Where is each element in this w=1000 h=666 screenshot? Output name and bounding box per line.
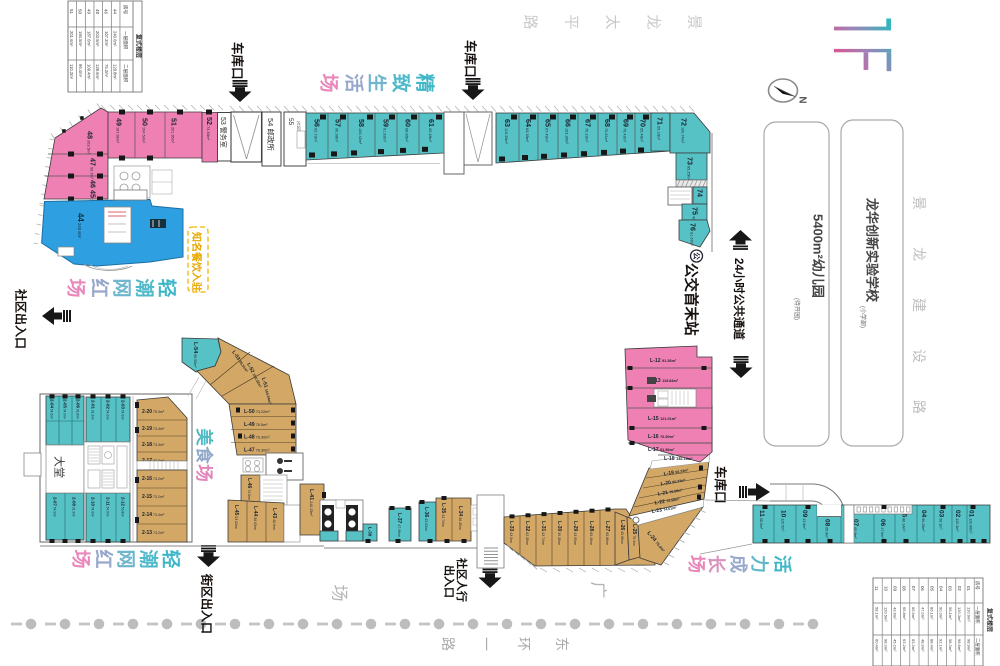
svg-text:景: 景 xyxy=(686,14,703,29)
svg-text:120.5m²: 120.5m² xyxy=(884,607,889,622)
svg-text:成: 成 xyxy=(728,555,749,573)
svg-text:致: 致 xyxy=(390,73,413,93)
svg-text:48: 48 xyxy=(95,9,100,15)
svg-text:24小时公共通道: 24小时公共通道 xyxy=(732,258,746,340)
svg-text:194.5m²: 194.5m² xyxy=(78,31,83,47)
svg-text:92.1m²: 92.1m² xyxy=(939,639,944,652)
svg-text:2-04 54.0m²: 2-04 54.0m² xyxy=(49,399,54,419)
svg-text:环: 环 xyxy=(516,637,532,651)
svg-text:龙: 龙 xyxy=(645,14,662,29)
svg-text:46: 46 xyxy=(104,9,109,15)
svg-text:11: 11 xyxy=(874,586,879,591)
svg-text:红: 红 xyxy=(88,278,111,297)
svg-text:美: 美 xyxy=(194,428,214,446)
svg-text:活: 活 xyxy=(772,555,793,573)
svg-text:203.5m²: 203.5m² xyxy=(95,31,100,47)
svg-text:120.9m²: 120.9m² xyxy=(966,607,971,622)
svg-text:街区出入口: 街区出入口 xyxy=(200,573,215,634)
svg-text:房号: 房号 xyxy=(974,581,981,590)
svg-text:场: 场 xyxy=(686,555,706,573)
svg-text:房号: 房号 xyxy=(122,5,129,15)
svg-text:01 120.86m²: 01 120.86m² xyxy=(968,510,975,534)
svg-text:建: 建 xyxy=(911,298,927,312)
svg-text:58.1m²: 58.1m² xyxy=(874,607,879,620)
svg-text:98.3m²: 98.3m² xyxy=(884,639,889,652)
svg-text:(待开园): (待开园) xyxy=(793,298,801,320)
svg-text:06: 06 xyxy=(920,586,925,591)
svg-text:广: 广 xyxy=(589,582,608,599)
svg-text:187.6m²: 187.6m² xyxy=(87,31,92,47)
svg-text:60.4m²: 60.4m² xyxy=(874,639,879,652)
svg-text:5400m²幼儿园: 5400m²幼儿园 xyxy=(811,214,826,298)
svg-text:98.6m²: 98.6m² xyxy=(957,639,962,652)
svg-text:90.3m²: 90.3m² xyxy=(939,607,944,620)
svg-text:2-07 54.0m²: 2-07 54.0m² xyxy=(52,497,57,517)
svg-text:2-08 91.9m²: 2-08 91.9m² xyxy=(71,497,76,517)
svg-text:精: 精 xyxy=(414,73,437,92)
svg-text:轻: 轻 xyxy=(160,549,183,568)
svg-text:51: 51 xyxy=(69,9,74,15)
svg-text:2-02 54.0m²: 2-02 54.0m² xyxy=(105,400,110,420)
svg-text:02: 02 xyxy=(957,586,962,591)
svg-text:平: 平 xyxy=(563,14,580,29)
svg-text:路: 路 xyxy=(440,637,456,651)
svg-text:2-12 53.8m²: 2-12 53.8m² xyxy=(120,497,125,517)
svg-text:01: 01 xyxy=(966,586,971,591)
svg-text:201.6m²: 201.6m² xyxy=(69,31,74,47)
svg-text:L-38: L-38 xyxy=(367,527,372,537)
svg-text:04 90.26m²: 04 90.26m² xyxy=(920,510,927,532)
svg-text:场: 场 xyxy=(194,464,214,482)
svg-text:55: 55 xyxy=(287,118,294,126)
svg-text:2-01 91.3m²: 2-01 91.3m² xyxy=(90,400,95,420)
svg-text:长: 长 xyxy=(706,555,726,574)
svg-text:一层面积: 一层面积 xyxy=(974,606,981,624)
svg-text:43.6m²: 43.6m² xyxy=(893,607,898,620)
svg-text:活: 活 xyxy=(343,73,366,92)
svg-text:复式楼层: 复式楼层 xyxy=(135,33,143,58)
svg-text:03: 03 xyxy=(948,586,953,591)
svg-text:96.4m²: 96.4m² xyxy=(78,64,83,78)
svg-text:潮: 潮 xyxy=(133,278,155,297)
svg-text:公交首末站: 公交首末站 xyxy=(682,263,700,336)
svg-text:网: 网 xyxy=(115,549,136,568)
svg-text:车库口: 车库口 xyxy=(463,40,478,78)
svg-text:一: 一 xyxy=(478,637,494,651)
svg-text:龙: 龙 xyxy=(911,247,927,261)
svg-text:网: 网 xyxy=(111,278,132,297)
svg-text:50: 50 xyxy=(78,9,83,15)
svg-text:63.2m²: 63.2m² xyxy=(902,639,907,652)
svg-text:复式楼层: 复式楼层 xyxy=(986,607,994,632)
svg-text:二层面积: 二层面积 xyxy=(122,64,129,83)
svg-text:107.2m²: 107.2m² xyxy=(104,31,109,47)
svg-text:65.9m²: 65.9m² xyxy=(911,607,916,620)
svg-text:设: 设 xyxy=(911,349,927,363)
svg-text:06 47.0m²: 06 47.0m² xyxy=(879,519,886,539)
svg-text:128.6m²: 128.6m² xyxy=(95,64,100,80)
svg-text:2-03 54.0m²: 2-03 54.0m² xyxy=(120,400,125,420)
svg-text:120.3m²: 120.3m² xyxy=(957,607,962,622)
svg-text:86.1m²: 86.1m² xyxy=(930,607,935,620)
svg-text:10 120.5m²: 10 120.5m² xyxy=(780,510,787,532)
svg-text:10: 10 xyxy=(883,586,888,591)
svg-text:09 43.6m²: 09 43.6m² xyxy=(801,510,808,530)
svg-text:一层面积: 一层面积 xyxy=(122,31,129,50)
svg-text:红: 红 xyxy=(92,549,115,568)
svg-text:03 56.1m²: 03 56.1m² xyxy=(938,510,945,530)
svg-text:社区人行: 社区人行 xyxy=(455,557,469,602)
svg-text:08 65.8m²: 08 65.8m² xyxy=(824,519,831,539)
svg-text:47.0m²: 47.0m² xyxy=(920,607,925,620)
svg-text:社区出入口: 社区出入口 xyxy=(14,288,29,349)
svg-text:太: 太 xyxy=(604,14,621,29)
svg-text:路: 路 xyxy=(522,14,539,29)
svg-text:11 58.0m²: 11 58.0m² xyxy=(758,510,765,530)
svg-text:08: 08 xyxy=(902,586,907,591)
svg-text:出入口: 出入口 xyxy=(443,565,457,598)
svg-text:65.8m²: 65.8m² xyxy=(902,607,907,620)
svg-text:44: 44 xyxy=(112,9,117,15)
svg-text:58.3m²: 58.3m² xyxy=(948,639,953,652)
svg-text:09: 09 xyxy=(893,586,898,591)
svg-text:05: 05 xyxy=(929,586,934,591)
svg-text:大堂: 大堂 xyxy=(53,456,67,478)
svg-text:力: 力 xyxy=(749,555,769,573)
svg-text:109.4m²: 109.4m² xyxy=(87,64,92,80)
svg-text:48.9m²: 48.9m² xyxy=(920,639,925,652)
svg-text:场: 场 xyxy=(70,549,92,568)
svg-text:公: 公 xyxy=(692,252,701,260)
svg-text:74: 74 xyxy=(696,189,705,197)
svg-text:景: 景 xyxy=(911,196,927,210)
svg-text:路: 路 xyxy=(911,400,927,414)
svg-text:东: 东 xyxy=(554,637,570,651)
svg-text:轻: 轻 xyxy=(156,278,179,297)
svg-text:生: 生 xyxy=(366,73,389,92)
svg-text:110.2m²: 110.2m² xyxy=(69,64,74,80)
svg-text:88.4m²: 88.4m² xyxy=(930,639,935,652)
svg-text:56.1m²: 56.1m² xyxy=(948,607,953,620)
svg-text:场: 场 xyxy=(65,278,87,297)
svg-text:2-06 91.8m²: 2-06 91.8m² xyxy=(75,399,80,419)
svg-text:车库口: 车库口 xyxy=(713,466,728,504)
svg-text:98.9m²: 98.9m² xyxy=(966,639,971,652)
svg-text:二层面积: 二层面积 xyxy=(974,638,981,656)
svg-text:54 邮政所: 54 邮政所 xyxy=(266,118,276,151)
svg-text:240.6m²: 240.6m² xyxy=(113,31,118,47)
svg-text:2-11 54.0m²: 2-11 54.0m² xyxy=(105,497,110,517)
svg-text:02 120.3m²: 02 120.3m² xyxy=(954,510,961,532)
svg-text:食: 食 xyxy=(194,446,214,464)
svg-text:129.8m²: 129.8m² xyxy=(113,64,118,80)
svg-text:2-05 54.0m²: 2-05 54.0m² xyxy=(62,399,67,419)
svg-text:04: 04 xyxy=(939,586,944,591)
svg-text:75.2m²: 75.2m² xyxy=(104,64,109,78)
svg-text:场: 场 xyxy=(318,73,340,92)
svg-text:07: 07 xyxy=(911,586,916,591)
svg-text:场: 场 xyxy=(330,585,349,602)
svg-text:N: N xyxy=(797,96,808,103)
svg-text:龙华创新实验学校: 龙华创新实验学校 xyxy=(865,198,880,303)
svg-text:车库口: 车库口 xyxy=(230,42,245,80)
svg-text:49: 49 xyxy=(86,9,91,15)
svg-text:(小学部): (小学部) xyxy=(859,306,867,328)
svg-text:45.2m²: 45.2m² xyxy=(893,639,898,652)
svg-text:63.3m²: 63.3m² xyxy=(911,639,916,652)
svg-text:2-10 54.0m²: 2-10 54.0m² xyxy=(90,497,95,517)
svg-text:潮: 潮 xyxy=(137,549,159,568)
svg-text:53 警务室: 53 警务室 xyxy=(219,117,228,148)
svg-text:知名餐饮入驻: 知名餐饮入驻 xyxy=(190,231,203,292)
